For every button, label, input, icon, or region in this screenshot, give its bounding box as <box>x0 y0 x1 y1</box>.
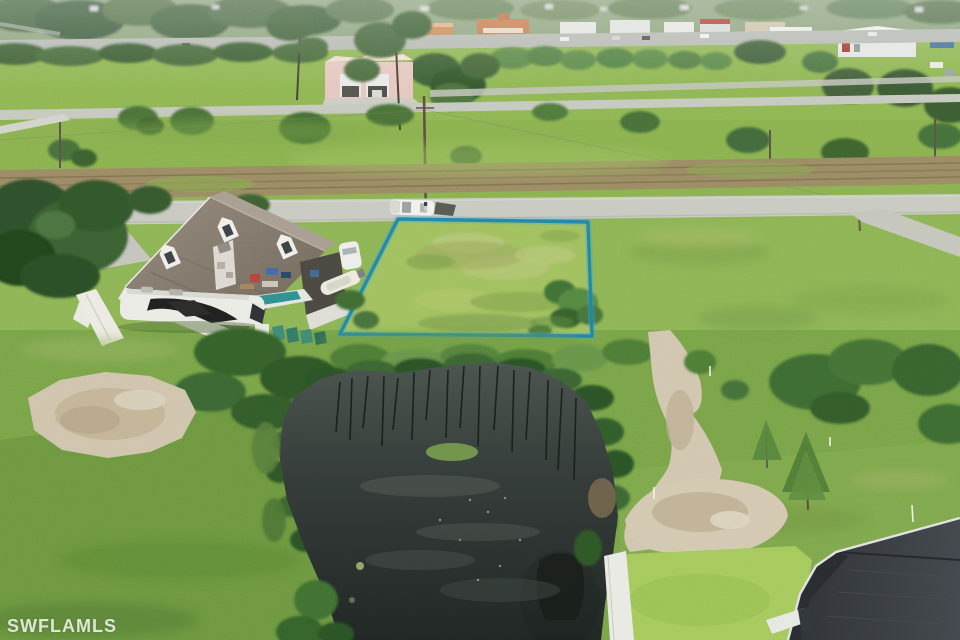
mls-watermark: SWFLAMLS <box>7 616 117 637</box>
photo-grain <box>0 0 960 640</box>
aerial-photo-scene <box>0 0 960 640</box>
aerial-photo: SWFLAMLS <box>0 0 960 640</box>
